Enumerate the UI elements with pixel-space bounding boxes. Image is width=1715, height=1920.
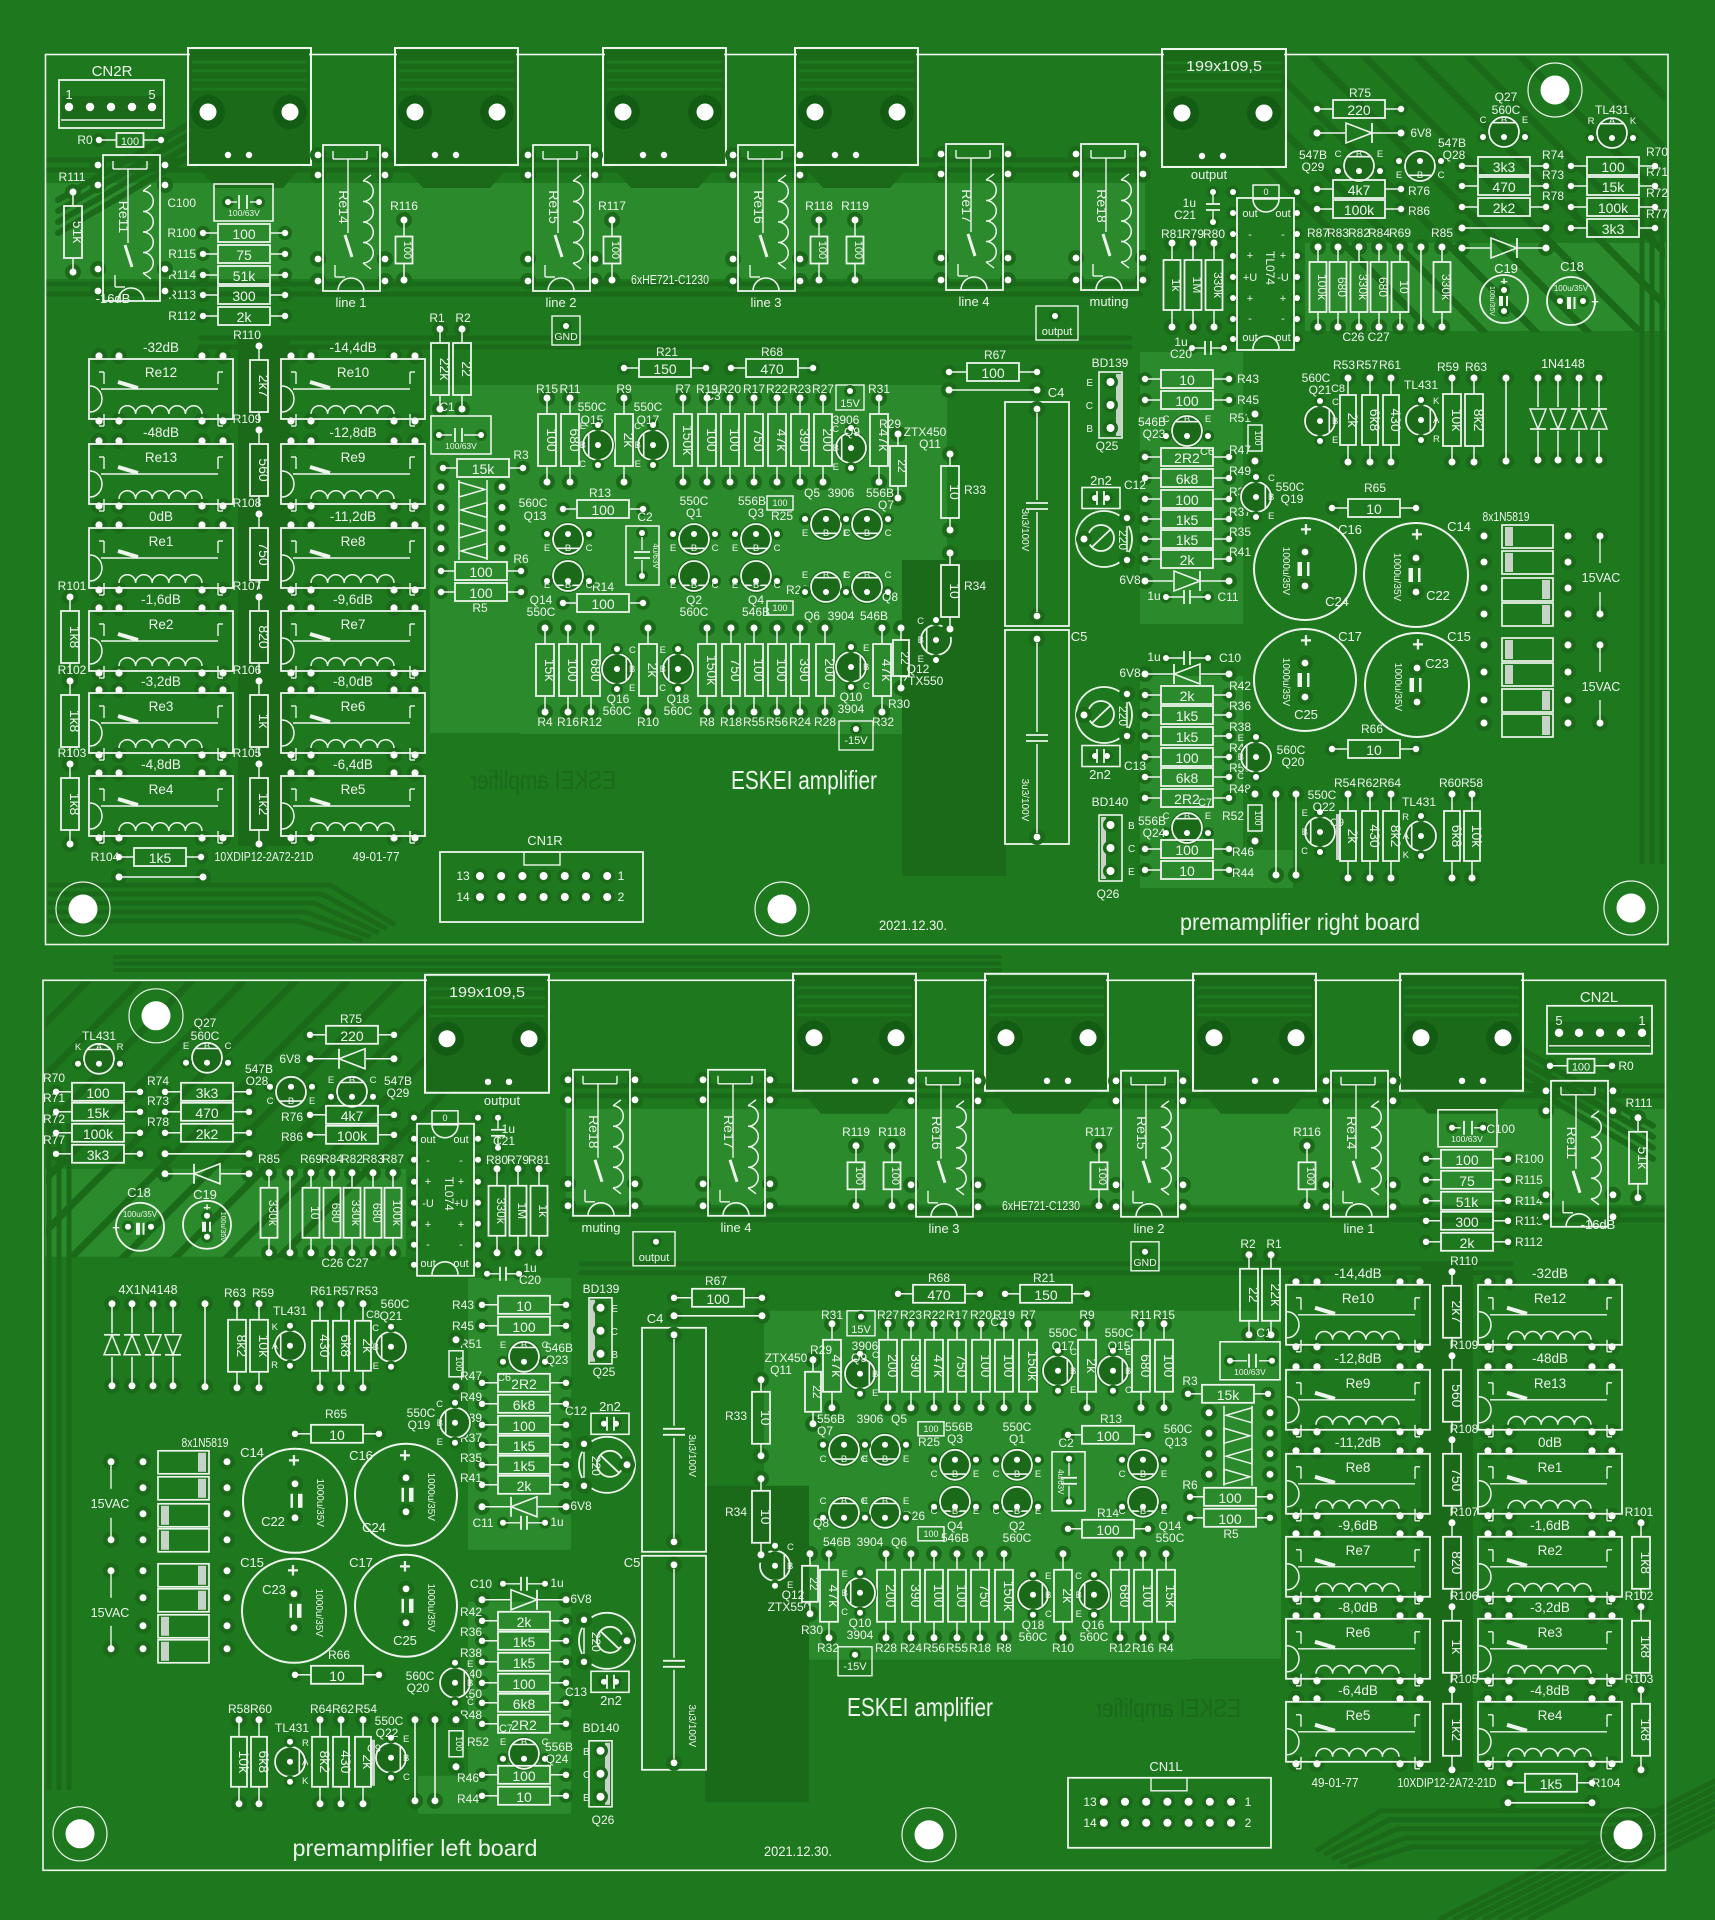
svg-text:R111: R111	[1626, 1096, 1653, 1110]
svg-text:2k: 2k	[1460, 1235, 1476, 1251]
svg-text:Re10: Re10	[337, 365, 369, 380]
svg-text:1u: 1u	[550, 1515, 563, 1529]
svg-text:49-01-77: 49-01-77	[353, 850, 400, 864]
svg-text:100: 100	[853, 1167, 865, 1185]
svg-text:R87: R87	[382, 1152, 404, 1166]
svg-text:R56: R56	[923, 1641, 945, 1655]
svg-text:R53: R53	[356, 1284, 378, 1298]
svg-text:R27: R27	[877, 1308, 899, 1322]
svg-text:546B: 546B	[742, 605, 770, 619]
svg-text:C7: C7	[499, 1723, 513, 1735]
svg-text:C: C	[1119, 1506, 1126, 1517]
svg-text:R44: R44	[1232, 866, 1254, 880]
svg-text:R16: R16	[557, 715, 579, 729]
svg-text:1k8: 1k8	[1638, 1719, 1654, 1742]
svg-text:1k2: 1k2	[1449, 1719, 1465, 1742]
svg-text:E: E	[670, 580, 676, 591]
svg-text:R55: R55	[743, 715, 765, 729]
svg-text:TL431: TL431	[1404, 378, 1438, 392]
svg-text:R2: R2	[1240, 1237, 1256, 1251]
svg-text:C: C	[841, 1607, 848, 1618]
svg-text:R76: R76	[1408, 184, 1430, 198]
svg-text:3k3: 3k3	[1602, 221, 1625, 237]
svg-text:100/63V: 100/63V	[445, 441, 477, 451]
svg-text:C: C	[1335, 149, 1342, 160]
svg-text:Q1: Q1	[1009, 1432, 1025, 1446]
svg-text:R67: R67	[984, 348, 1006, 362]
svg-text:CN2L: CN2L	[1580, 989, 1618, 1006]
svg-text:680: 680	[1376, 277, 1390, 297]
svg-text:546B: 546B	[860, 609, 888, 623]
svg-text:R21: R21	[656, 345, 678, 359]
svg-text:R83: R83	[362, 1152, 384, 1166]
svg-text:22: 22	[898, 651, 912, 665]
svg-text:Q8: Q8	[813, 1516, 829, 1530]
svg-text:R72: R72	[1646, 186, 1668, 200]
svg-text:100: 100	[852, 241, 864, 259]
svg-text:BD140: BD140	[1092, 795, 1129, 809]
svg-text:-11,2dB: -11,2dB	[330, 509, 376, 524]
svg-text:3904: 3904	[847, 1628, 874, 1642]
svg-text:Re7: Re7	[341, 617, 366, 632]
svg-text:-U: -U	[422, 1198, 434, 1210]
svg-text:line 3: line 3	[928, 1221, 959, 1236]
svg-text:100: 100	[981, 365, 1005, 381]
svg-text:100: 100	[469, 564, 493, 580]
svg-text:3904: 3904	[838, 702, 865, 716]
svg-text:K: K	[1630, 116, 1637, 127]
svg-text:R110: R110	[1450, 1254, 1478, 1268]
svg-text:3904: 3904	[857, 1535, 884, 1549]
svg-text:C15: C15	[1447, 629, 1471, 644]
svg-text:47k: 47k	[931, 1355, 947, 1379]
svg-text:E: E	[973, 1506, 979, 1517]
svg-text:0dB: 0dB	[1538, 1435, 1562, 1450]
svg-text:820: 820	[256, 625, 272, 649]
svg-text:6V8: 6V8	[1119, 666, 1141, 680]
svg-text:R3: R3	[1182, 1374, 1198, 1388]
svg-text:C26 C27: C26 C27	[321, 1256, 369, 1270]
svg-text:1000u/35V: 1000u/35V	[314, 1479, 325, 1528]
svg-text:R42: R42	[460, 1605, 482, 1619]
svg-text:470: 470	[760, 361, 784, 377]
svg-text:330k: 330k	[349, 1200, 363, 1227]
svg-text:Q6: Q6	[891, 1535, 907, 1549]
svg-text:TL431: TL431	[82, 1029, 116, 1043]
svg-text:15k: 15k	[87, 1105, 111, 1121]
svg-text:B: B	[1045, 1590, 1051, 1601]
svg-text:R25: R25	[771, 509, 793, 523]
svg-text:B: B	[1302, 827, 1308, 838]
svg-text:C24: C24	[1325, 594, 1349, 609]
svg-text:C: C	[1438, 170, 1445, 181]
svg-text:C13: C13	[565, 1685, 587, 1699]
svg-text:199x109,5: 199x109,5	[449, 985, 525, 1001]
svg-text:R73: R73	[1542, 168, 1564, 182]
svg-text:E: E	[1086, 378, 1093, 389]
svg-text:6k8: 6k8	[1449, 825, 1465, 848]
svg-text:B: B	[629, 664, 635, 675]
svg-text:R83: R83	[1327, 226, 1349, 240]
svg-text:R33: R33	[725, 1409, 747, 1423]
svg-text:R: R	[117, 1042, 124, 1053]
svg-text:B: B	[1140, 1469, 1146, 1480]
svg-text:R71: R71	[1646, 165, 1668, 179]
svg-text:4k7: 4k7	[341, 1108, 364, 1124]
svg-text:-12,8dB: -12,8dB	[329, 425, 376, 440]
svg-text:Re12: Re12	[145, 365, 177, 380]
svg-text:R65: R65	[1364, 481, 1386, 495]
svg-text:-U: -U	[1277, 272, 1289, 284]
svg-text:E: E	[1161, 1506, 1167, 1517]
svg-text:1M: 1M	[515, 1202, 529, 1219]
svg-text:10: 10	[758, 1410, 774, 1426]
svg-text:Re15: Re15	[1134, 1116, 1150, 1150]
svg-text:R9: R9	[616, 382, 632, 396]
svg-text:100: 100	[772, 603, 787, 613]
svg-text:line 2: line 2	[545, 295, 576, 310]
svg-text:R16: R16	[1132, 1641, 1154, 1655]
svg-text:E: E	[183, 1041, 189, 1052]
svg-text:R103: R103	[58, 746, 87, 760]
svg-text:8x1N5819: 8x1N5819	[1483, 510, 1530, 524]
svg-text:B: B	[1140, 1506, 1146, 1517]
svg-text:560C: 560C	[680, 605, 709, 619]
svg-text:R20: R20	[970, 1308, 992, 1322]
svg-text:1k5: 1k5	[1176, 512, 1199, 528]
svg-text:C1: C1	[1256, 1326, 1272, 1340]
svg-text:C23: C23	[262, 1582, 286, 1597]
svg-text:R79: R79	[1182, 227, 1204, 241]
svg-text:TL431: TL431	[1402, 795, 1436, 809]
svg-text:E: E	[437, 1437, 443, 1448]
svg-text:220: 220	[1116, 530, 1130, 550]
svg-text:750: 750	[256, 542, 272, 566]
svg-text:R80: R80	[1203, 227, 1225, 241]
svg-text:100: 100	[1601, 159, 1625, 175]
svg-text:E: E	[1205, 414, 1211, 425]
svg-text:R5: R5	[1223, 1527, 1239, 1541]
svg-text:R36: R36	[460, 1625, 482, 1639]
svg-text:200: 200	[883, 1584, 899, 1608]
svg-text:R32: R32	[817, 1641, 839, 1655]
svg-text:B: B	[1014, 1506, 1020, 1517]
svg-text:47k: 47k	[774, 429, 790, 453]
svg-text:220: 220	[340, 1028, 364, 1044]
svg-text:R75: R75	[1349, 86, 1371, 100]
svg-text:R84: R84	[321, 1152, 343, 1166]
svg-text:1k5: 1k5	[1176, 729, 1199, 745]
svg-text:75: 75	[1459, 1173, 1475, 1189]
svg-text:R57: R57	[333, 1284, 355, 1298]
svg-text:B: B	[841, 1454, 847, 1465]
svg-text:R17: R17	[946, 1308, 968, 1322]
svg-text:C25: C25	[1294, 707, 1318, 722]
svg-text:Q3: Q3	[748, 506, 764, 520]
svg-text:1k5: 1k5	[149, 850, 172, 866]
svg-text:100: 100	[1572, 1062, 1590, 1074]
svg-text:560C: 560C	[603, 704, 632, 718]
svg-text:-48dB: -48dB	[143, 425, 179, 440]
svg-text:E: E	[544, 580, 550, 591]
svg-text:Q9: Q9	[844, 425, 860, 439]
svg-text:C10: C10	[470, 1577, 492, 1591]
svg-text:out: out	[1275, 208, 1290, 220]
svg-text:150: 150	[1034, 1287, 1058, 1303]
svg-text:C: C	[586, 543, 593, 554]
svg-text:B: B	[1184, 811, 1190, 822]
svg-text:10k: 10k	[256, 1335, 272, 1359]
svg-text:-3,2dB: -3,2dB	[141, 674, 181, 689]
svg-text:100: 100	[232, 226, 256, 242]
svg-text:C: C	[1045, 1609, 1052, 1620]
svg-text:6k8: 6k8	[513, 1397, 536, 1413]
svg-text:100: 100	[704, 428, 720, 452]
svg-text:1k2: 1k2	[256, 793, 272, 816]
svg-text:C21: C21	[493, 1134, 515, 1148]
svg-text:R108: R108	[1450, 1422, 1479, 1436]
svg-text:2: 2	[1245, 1816, 1252, 1830]
svg-text:R52: R52	[1222, 809, 1244, 823]
svg-text:2n2: 2n2	[1090, 473, 1112, 488]
svg-text:Re3: Re3	[149, 699, 174, 714]
svg-text:+: +	[1247, 250, 1253, 262]
svg-text:line 4: line 4	[958, 294, 989, 309]
svg-text:100: 100	[512, 1418, 536, 1434]
svg-text:15k: 15k	[1163, 1585, 1179, 1609]
svg-text:R59: R59	[252, 1286, 274, 1300]
svg-text:Q23: Q23	[546, 1353, 569, 1367]
svg-text:R12: R12	[580, 715, 602, 729]
svg-text:10: 10	[329, 1668, 345, 1684]
svg-text:C19: C19	[193, 1187, 217, 1202]
svg-text:Q8: Q8	[882, 590, 898, 604]
svg-text:R36: R36	[1229, 699, 1251, 713]
svg-text:100: 100	[591, 502, 615, 518]
svg-text:R49: R49	[1229, 464, 1251, 478]
svg-text:-1,6dB: -1,6dB	[141, 592, 181, 607]
svg-text:100: 100	[727, 428, 743, 452]
svg-text:R28: R28	[875, 1641, 897, 1655]
svg-text:Re11: Re11	[1564, 1127, 1580, 1160]
svg-text:Q17: Q17	[637, 413, 660, 427]
svg-text:R106: R106	[1450, 1589, 1479, 1603]
svg-text:390: 390	[908, 1584, 924, 1608]
svg-text:A: A	[1403, 831, 1410, 842]
svg-text:Re14: Re14	[1344, 1116, 1360, 1150]
svg-text:100: 100	[1096, 1428, 1120, 1444]
svg-text:100: 100	[401, 241, 413, 259]
svg-text:1000u/35V: 1000u/35V	[1391, 553, 1402, 602]
svg-text:2k: 2k	[517, 1478, 533, 1494]
svg-text:R35: R35	[460, 1451, 482, 1465]
svg-text:1k8: 1k8	[1638, 1636, 1654, 1659]
svg-text:10: 10	[947, 583, 963, 599]
svg-text:550C: 550C	[1049, 1326, 1078, 1340]
svg-text:R104: R104	[1592, 1776, 1621, 1790]
svg-text:10XDIP12-2A72-21D: 10XDIP12-2A72-21D	[215, 849, 314, 864]
svg-text:6V8: 6V8	[279, 1052, 301, 1066]
svg-text:B: B	[833, 443, 839, 454]
svg-text:15VAC: 15VAC	[91, 1606, 130, 1620]
svg-text:4k7: 4k7	[1348, 182, 1371, 198]
svg-text:Q13: Q13	[1165, 1435, 1188, 1449]
svg-text:Re7: Re7	[1346, 1543, 1371, 1558]
svg-text:51k: 51k	[233, 268, 257, 284]
svg-text:R81: R81	[528, 1153, 550, 1167]
svg-text:51k: 51k	[1635, 1147, 1651, 1171]
svg-text:100u/35V: 100u/35V	[219, 1212, 226, 1242]
svg-text:E: E	[802, 570, 808, 581]
svg-text:R112: R112	[168, 309, 196, 323]
svg-text:R82: R82	[341, 1152, 363, 1166]
svg-text:75: 75	[236, 247, 252, 263]
svg-text:C17: C17	[349, 1555, 373, 1570]
svg-text:B: B	[1238, 752, 1244, 763]
svg-text:+: +	[288, 1450, 300, 1472]
svg-text:100: 100	[1304, 1167, 1316, 1185]
svg-text:Q7: Q7	[817, 1424, 833, 1438]
svg-text:C20: C20	[519, 1273, 541, 1287]
svg-text:R29: R29	[879, 417, 901, 431]
svg-text:6xHE721-C1230: 6xHE721-C1230	[1002, 1198, 1080, 1213]
svg-text:C15: C15	[240, 1555, 264, 1570]
svg-text:100k: 100k	[83, 1126, 114, 1142]
svg-text:R79: R79	[507, 1153, 529, 1167]
svg-text:B: B	[823, 570, 829, 581]
svg-text:TL074: TL074	[442, 1177, 456, 1211]
svg-text:10: 10	[758, 1509, 774, 1525]
svg-text:100: 100	[1218, 1490, 1242, 1506]
svg-text:10: 10	[329, 1427, 345, 1443]
svg-text:-4,8dB: -4,8dB	[1530, 1683, 1570, 1698]
svg-text:out: out	[1242, 208, 1257, 220]
svg-text:TL431: TL431	[1595, 103, 1629, 117]
svg-text:R25: R25	[918, 1435, 940, 1449]
svg-text:6k8: 6k8	[513, 1696, 536, 1712]
svg-text:22: 22	[1246, 1287, 1262, 1303]
svg-text:R49: R49	[460, 1390, 482, 1404]
svg-text:R21: R21	[1033, 1271, 1055, 1285]
svg-text:R9: R9	[1079, 1308, 1095, 1322]
svg-text:680: 680	[1117, 1584, 1133, 1608]
svg-text:R115: R115	[1515, 1173, 1543, 1187]
svg-text:1k: 1k	[1169, 279, 1183, 293]
svg-text:R117: R117	[598, 199, 626, 213]
svg-text:Q29: Q29	[1302, 160, 1325, 174]
svg-text:B: B	[872, 1369, 878, 1380]
svg-text:R101: R101	[1625, 1505, 1654, 1519]
svg-text:K: K	[1403, 850, 1410, 861]
svg-text:2R2: 2R2	[1174, 791, 1200, 807]
svg-text:100: 100	[816, 241, 828, 259]
svg-text:6k8: 6k8	[1176, 770, 1199, 786]
svg-text:R24: R24	[789, 715, 811, 729]
svg-text:8k2: 8k2	[234, 1335, 250, 1358]
svg-text:8k2: 8k2	[1388, 825, 1404, 848]
svg-text:GND: GND	[554, 331, 578, 343]
svg-text:R112: R112	[1515, 1235, 1543, 1249]
svg-text:470: 470	[195, 1105, 219, 1121]
svg-text:R63: R63	[224, 1286, 246, 1300]
svg-text:Re18: Re18	[1094, 189, 1110, 223]
svg-text:330k: 330k	[1211, 272, 1225, 299]
svg-text:550C: 550C	[578, 400, 607, 414]
svg-text:R61: R61	[310, 1284, 332, 1298]
svg-text:R0: R0	[77, 133, 93, 147]
svg-text:B: B	[841, 1496, 847, 1507]
svg-text:C12: C12	[565, 1404, 587, 1418]
svg-text:-6,4dB: -6,4dB	[333, 757, 373, 772]
svg-text:820: 820	[1449, 1551, 1465, 1575]
svg-text:R108: R108	[233, 496, 262, 510]
svg-text:100: 100	[609, 241, 621, 259]
svg-text:Re18: Re18	[586, 1115, 602, 1149]
svg-text:Re17: Re17	[959, 189, 975, 223]
svg-text:R35: R35	[1229, 525, 1251, 539]
svg-text:R62: R62	[1357, 776, 1379, 790]
svg-text:R30: R30	[888, 697, 910, 711]
svg-text:390: 390	[908, 1354, 924, 1378]
svg-text:R: R	[1433, 434, 1440, 445]
svg-text:100: 100	[565, 658, 581, 682]
svg-text:47k: 47k	[826, 1585, 842, 1609]
svg-text:C12: C12	[1124, 478, 1146, 492]
svg-text:R57: R57	[1356, 358, 1378, 372]
svg-text:750: 750	[954, 1354, 970, 1378]
svg-text:100: 100	[1218, 1511, 1242, 1527]
svg-text:+: +	[1247, 293, 1253, 305]
svg-text:5: 5	[148, 87, 155, 102]
svg-text:680: 680	[1138, 1354, 1154, 1378]
svg-text:B: B	[580, 440, 586, 451]
svg-text:line 4: line 4	[720, 1220, 751, 1235]
svg-text:3k3: 3k3	[87, 1147, 110, 1163]
svg-text:+: +	[1591, 294, 1599, 309]
svg-text:100: 100	[512, 1319, 536, 1335]
svg-text:1k5: 1k5	[513, 1438, 536, 1454]
svg-text:C: C	[629, 645, 636, 656]
svg-text:R82: R82	[1348, 226, 1370, 240]
svg-text:560C: 560C	[1164, 1422, 1193, 1436]
svg-text:R106: R106	[233, 663, 262, 677]
svg-text:2k7: 2k7	[1449, 1301, 1465, 1324]
svg-text:100: 100	[774, 658, 790, 682]
svg-text:Q27: Q27	[194, 1016, 217, 1030]
svg-text:R69: R69	[1389, 226, 1411, 240]
svg-text:E: E	[635, 459, 641, 470]
svg-text:2R2: 2R2	[1174, 450, 1200, 466]
svg-text:2k: 2k	[1180, 688, 1196, 704]
svg-text:R86: R86	[281, 1130, 303, 1144]
svg-text:1: 1	[618, 869, 625, 883]
svg-text:3u3/100V: 3u3/100V	[686, 1434, 697, 1477]
svg-text:R63: R63	[1465, 360, 1487, 374]
svg-text:B: B	[565, 543, 571, 554]
svg-text:C1: C1	[439, 400, 455, 414]
svg-text:R: R	[271, 1360, 278, 1371]
svg-text:C14: C14	[1447, 519, 1471, 534]
svg-text:R74: R74	[147, 1074, 169, 1088]
svg-text:R66: R66	[328, 1648, 350, 1662]
svg-text:R73: R73	[147, 1094, 169, 1108]
svg-text:2n2: 2n2	[1089, 767, 1111, 782]
svg-text:15VAC: 15VAC	[1582, 571, 1621, 585]
svg-text:B: B	[1125, 1366, 1131, 1377]
svg-text:R47: R47	[460, 1369, 482, 1383]
svg-text:330k: 330k	[266, 1200, 280, 1227]
svg-text:B: B	[635, 440, 641, 451]
